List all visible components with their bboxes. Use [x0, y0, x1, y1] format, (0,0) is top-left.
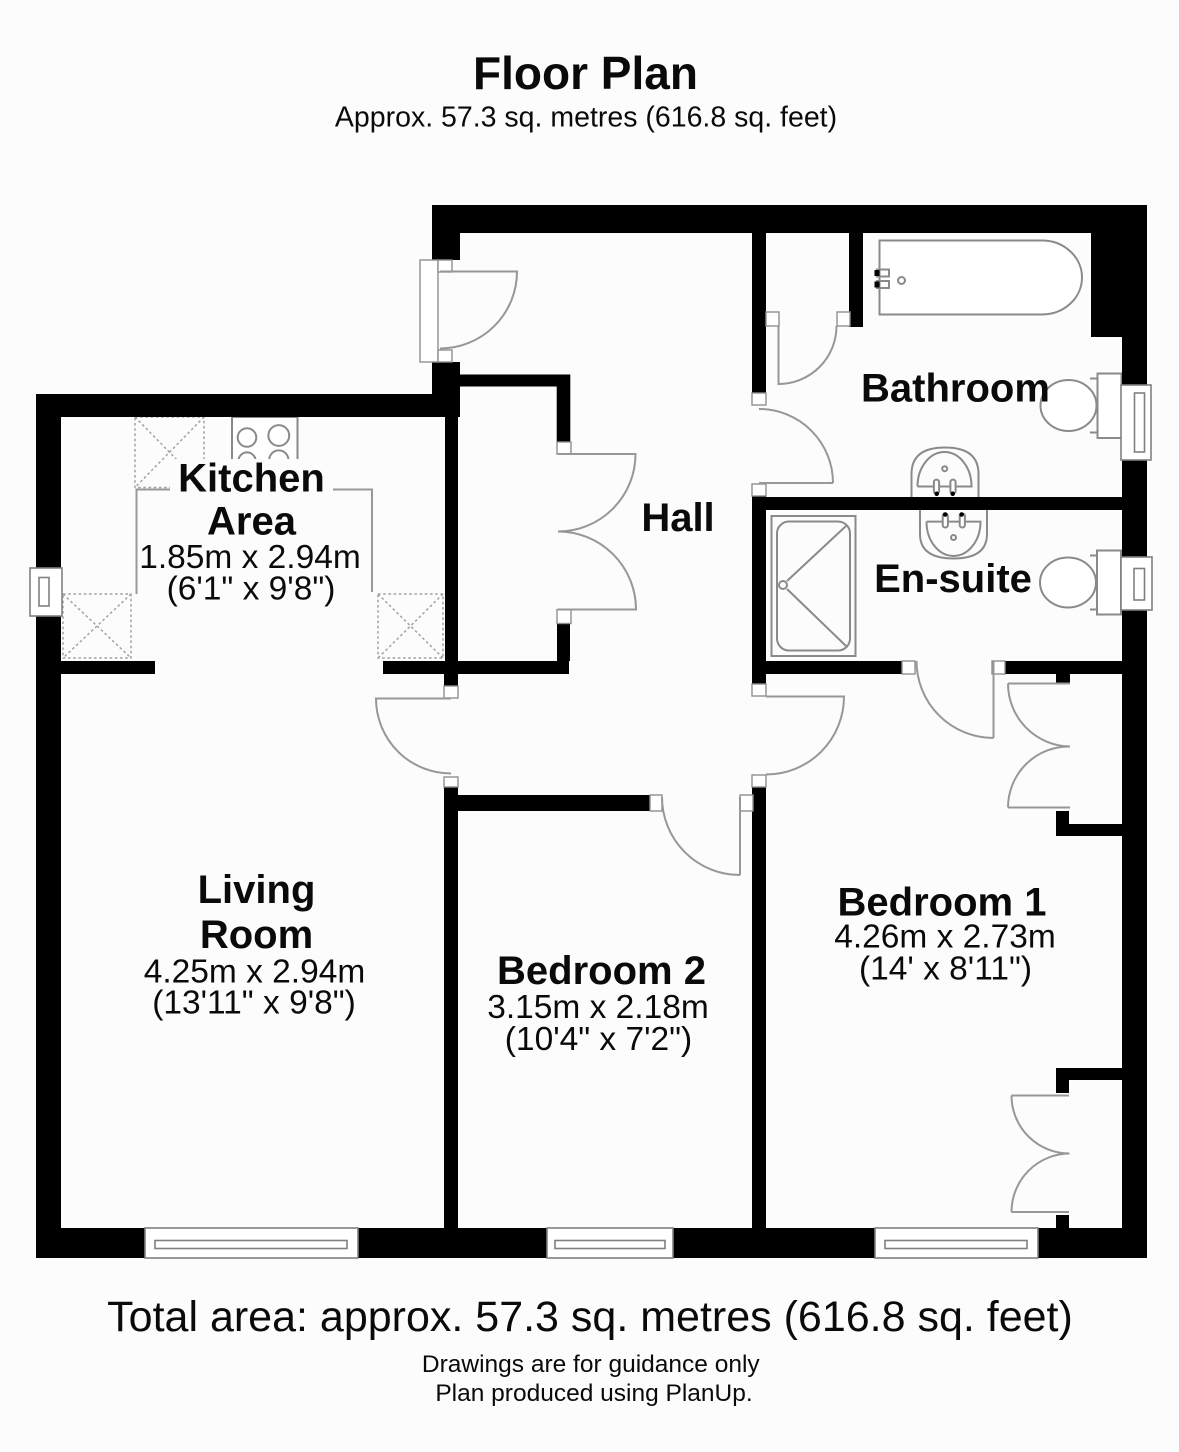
- svg-text:(6'1" x 9'8"): (6'1" x 9'8"): [167, 571, 336, 608]
- svg-text:Room: Room: [200, 913, 313, 957]
- svg-text:Area: Area: [207, 500, 297, 544]
- svg-text:(14' x 8'11"): (14' x 8'11"): [859, 951, 1032, 988]
- svg-text:Bedroom 2: Bedroom 2: [497, 949, 706, 993]
- svg-text:Plan produced using PlanUp.: Plan produced using PlanUp.: [435, 1380, 752, 1407]
- svg-text:Hall: Hall: [641, 496, 714, 540]
- svg-text:En-suite: En-suite: [874, 557, 1032, 601]
- svg-text:Approx. 57.3 sq. metres (616.8: Approx. 57.3 sq. metres (616.8 sq. feet): [335, 102, 837, 134]
- svg-text:Kitchen: Kitchen: [178, 457, 325, 501]
- svg-text:Floor Plan: Floor Plan: [473, 47, 698, 99]
- svg-text:(13'11" x 9'8"): (13'11" x 9'8"): [152, 985, 356, 1022]
- svg-text:Living: Living: [198, 868, 316, 912]
- svg-text:Total area: approx. 57.3 sq. m: Total area: approx. 57.3 sq. metres (616…: [107, 1293, 1073, 1341]
- svg-text:(10'4" x 7'2"): (10'4" x 7'2"): [505, 1021, 692, 1058]
- svg-text:Bathroom: Bathroom: [861, 367, 1050, 411]
- svg-text:Drawings are for guidance only: Drawings are for guidance only: [422, 1351, 760, 1378]
